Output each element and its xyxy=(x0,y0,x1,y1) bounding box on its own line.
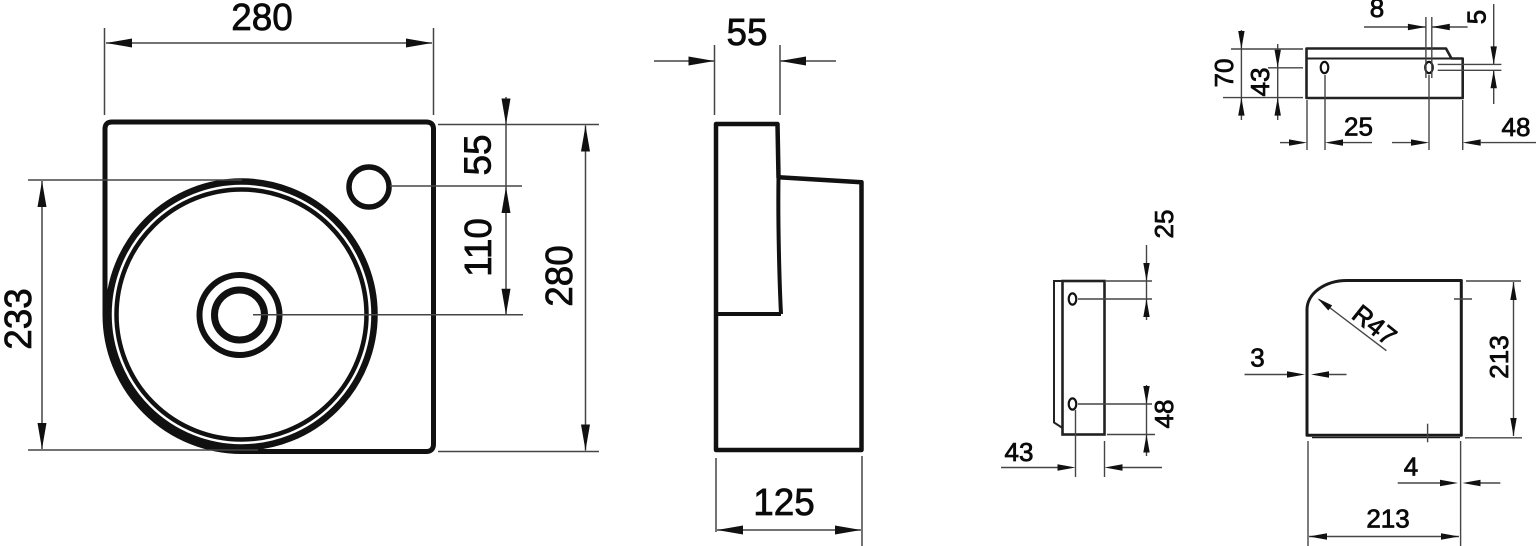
svg-text:48: 48 xyxy=(1502,112,1531,142)
svg-text:25: 25 xyxy=(1344,112,1373,142)
svg-text:3: 3 xyxy=(1250,343,1264,373)
svg-text:125: 125 xyxy=(753,482,815,524)
svg-text:48: 48 xyxy=(1149,400,1179,429)
svg-text:55: 55 xyxy=(726,12,767,54)
svg-text:8: 8 xyxy=(1370,0,1384,23)
svg-text:R47: R47 xyxy=(1346,298,1402,351)
svg-text:110: 110 xyxy=(458,218,500,277)
svg-text:43: 43 xyxy=(1245,68,1275,97)
svg-text:5: 5 xyxy=(1462,10,1492,24)
svg-text:213: 213 xyxy=(1484,335,1514,378)
svg-text:55: 55 xyxy=(458,134,500,175)
svg-text:280: 280 xyxy=(231,0,293,39)
svg-text:213: 213 xyxy=(1366,504,1409,534)
svg-text:4: 4 xyxy=(1404,452,1418,482)
svg-text:43: 43 xyxy=(1005,437,1034,467)
svg-text:280: 280 xyxy=(539,245,581,307)
svg-text:70: 70 xyxy=(1209,59,1239,88)
svg-text:233: 233 xyxy=(0,288,40,350)
svg-text:25: 25 xyxy=(1149,210,1179,239)
